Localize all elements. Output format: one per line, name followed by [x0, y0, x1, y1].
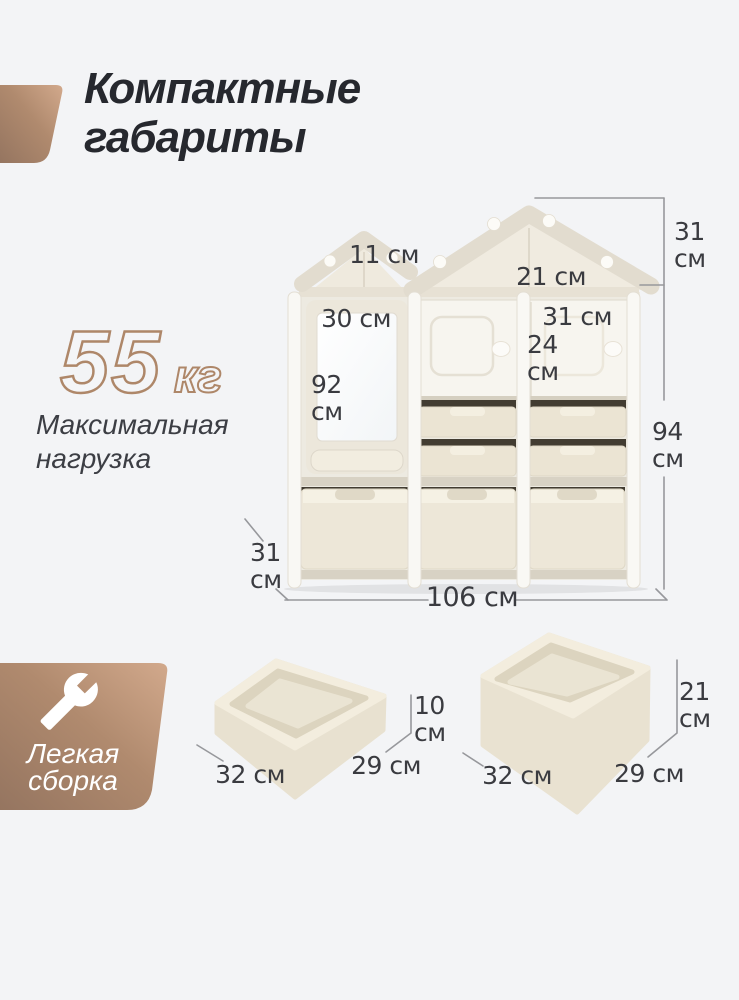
dim-body-height-value: 94	[652, 418, 684, 445]
page-title: Компактные габариты	[84, 64, 360, 162]
page-title-line2: габариты	[84, 113, 360, 162]
dim-roof-height-unit: см	[674, 245, 706, 272]
dim-roof-height-value: 31	[674, 218, 706, 245]
assembly-badge-line1: Легкая	[6, 740, 140, 767]
door-knob	[604, 342, 622, 357]
dim-bin-height: 21 см	[679, 678, 711, 732]
dim-bin-depth: 29 см	[614, 760, 684, 787]
dim-right-door-width: 31 см	[542, 303, 612, 330]
dim-whiteboard-width: 30 см	[321, 305, 391, 332]
marker-tray	[311, 450, 403, 471]
dim-whiteboard-height-value: 92	[311, 371, 343, 398]
title-ribbon	[0, 85, 62, 163]
dim-whiteboard-height: 92 см	[311, 371, 343, 425]
dim-bin-height-value: 21	[679, 678, 711, 705]
dim-right-door-height-value: 24	[527, 331, 559, 358]
max-load-caption-line1: Максимальная	[36, 408, 229, 442]
dim-tray-height-unit: см	[414, 719, 446, 746]
max-load-caption: Максимальная нагрузка	[36, 408, 229, 476]
dim-right-door-height: 24 см	[527, 331, 559, 385]
door-knob	[492, 342, 510, 357]
dim-body-height-unit: см	[652, 445, 684, 472]
max-load-unit: кг	[174, 350, 222, 402]
product-infographic: Компактные габариты 55кг Максимальная на…	[0, 0, 739, 1000]
dim-bin-height-unit: см	[679, 705, 711, 732]
dim-tray-depth: 29 см	[351, 752, 421, 779]
assembly-badge-line2: сборка	[6, 767, 140, 794]
max-load-value: 55	[60, 312, 162, 411]
dim-tray-width: 32 см	[215, 761, 285, 788]
dim-small-roof-width: 11 см	[349, 241, 419, 268]
page-title-line1: Компактные	[84, 64, 360, 113]
dim-whiteboard-height-unit: см	[311, 398, 343, 425]
large-drawer-bins	[301, 487, 625, 569]
dim-right-door-height-unit: см	[527, 358, 559, 385]
dim-unit-depth-value: 31	[250, 539, 282, 566]
max-load-caption-line2: нагрузка	[36, 442, 229, 476]
dim-large-roof-width: 21 см	[516, 263, 586, 290]
dim-unit-depth-unit: см	[250, 566, 282, 593]
dim-tray-height: 10 см	[414, 692, 446, 746]
dim-unit-width: 106 см	[426, 584, 518, 611]
dim-roof-height: 31 см	[674, 218, 706, 272]
max-load: 55кг	[60, 318, 222, 406]
dim-unit-depth: 31 см	[250, 539, 282, 593]
dim-body-height: 94 см	[652, 418, 684, 472]
dim-tray-height-value: 10	[414, 692, 446, 719]
dim-bin-width: 32 см	[482, 762, 552, 789]
assembly-badge-label: Легкая сборка	[6, 740, 140, 794]
